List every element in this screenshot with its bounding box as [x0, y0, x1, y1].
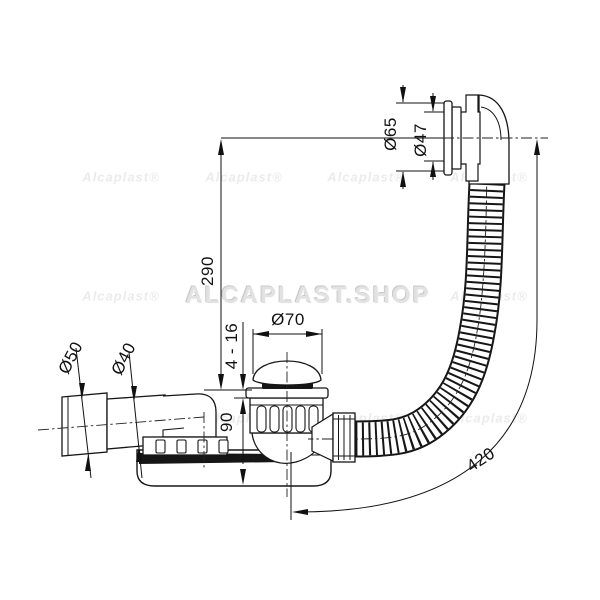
overflow-elbow-fitting: [444, 95, 509, 184]
drain-plug-assembly: [246, 361, 333, 463]
dim-label-overflow-height: 290: [198, 256, 218, 286]
dim-label-overflow-flange-diameter: Ø65: [381, 117, 401, 151]
drawing-canvas: [0, 0, 600, 600]
dim-label-plug-lift-range: 4 - 16: [222, 323, 242, 369]
dim-label-plug-cap-diameter: Ø70: [271, 310, 305, 330]
dim-label-overflow-pipe-diameter: Ø47: [411, 123, 431, 157]
corrugated-hose: [308, 128, 487, 462]
dim-label-trap-height: 90: [217, 412, 237, 432]
technical-drawing-page: Alcaplast® Alcaplast® Alcaplast® Alcapla…: [0, 0, 600, 600]
